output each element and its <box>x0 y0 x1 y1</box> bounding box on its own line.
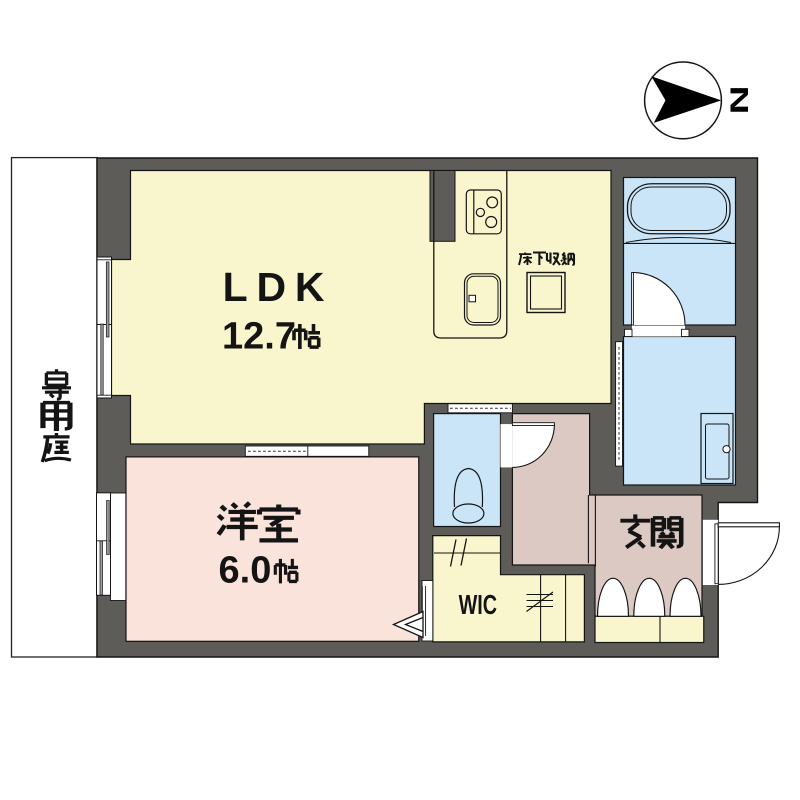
svg-text:LDK: LDK <box>223 264 334 310</box>
svg-text:N: N <box>725 86 753 115</box>
svg-text:12.7: 12.7 <box>222 315 296 357</box>
svg-text:6.0: 6.0 <box>219 549 272 591</box>
svg-text:WIC: WIC <box>459 589 498 620</box>
